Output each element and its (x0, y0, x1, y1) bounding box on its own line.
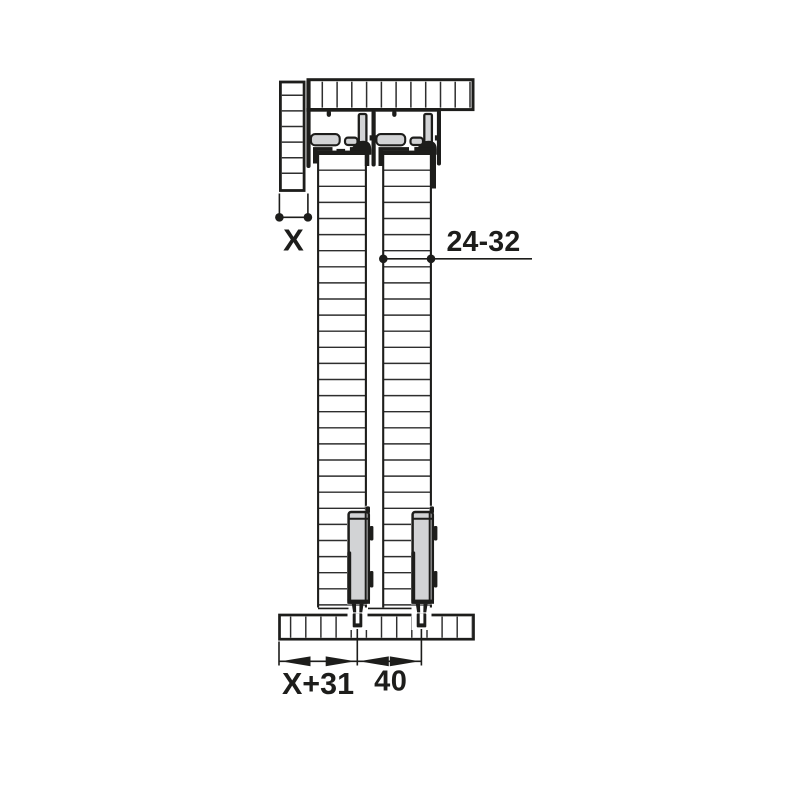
svg-text:40: 40 (374, 666, 407, 698)
svg-text:X+31: X+31 (282, 667, 354, 701)
svg-text:24-32: 24-32 (447, 226, 521, 258)
svg-text:X: X (283, 223, 304, 258)
